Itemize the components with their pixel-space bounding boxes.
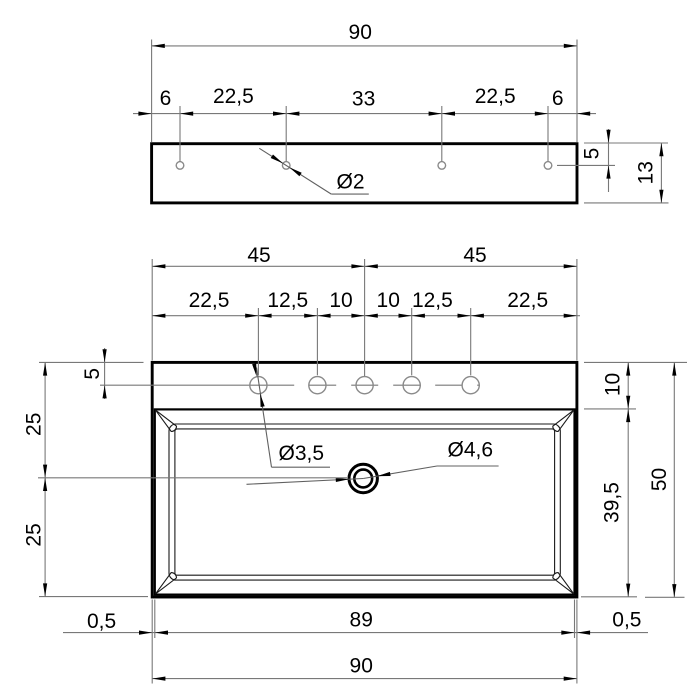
svg-text:0,5: 0,5 — [87, 610, 116, 633]
svg-text:12,5: 12,5 — [267, 289, 308, 312]
svg-text:22,5: 22,5 — [189, 289, 230, 312]
svg-text:5: 5 — [81, 368, 104, 380]
svg-text:45: 45 — [463, 244, 486, 267]
svg-text:6: 6 — [552, 87, 564, 110]
svg-text:39,5: 39,5 — [601, 482, 624, 523]
svg-text:Ø3,5: Ø3,5 — [279, 442, 325, 465]
svg-text:22,5: 22,5 — [475, 85, 516, 108]
svg-text:45: 45 — [247, 244, 270, 267]
svg-text:10: 10 — [377, 289, 400, 312]
svg-text:25: 25 — [23, 523, 46, 546]
svg-text:25: 25 — [23, 413, 46, 436]
svg-text:33: 33 — [352, 88, 375, 111]
svg-text:10: 10 — [329, 289, 352, 312]
svg-text:Ø4,6: Ø4,6 — [448, 438, 494, 461]
svg-text:89: 89 — [350, 609, 373, 632]
svg-text:6: 6 — [160, 87, 172, 110]
svg-text:90: 90 — [350, 655, 373, 678]
svg-text:50: 50 — [648, 468, 671, 491]
svg-text:12,5: 12,5 — [412, 289, 453, 312]
svg-text:Ø2: Ø2 — [336, 170, 364, 193]
svg-text:5: 5 — [580, 148, 603, 160]
svg-text:22,5: 22,5 — [213, 85, 254, 108]
svg-text:22,5: 22,5 — [507, 289, 548, 312]
svg-text:90: 90 — [349, 21, 372, 44]
svg-text:0,5: 0,5 — [612, 609, 641, 632]
svg-text:13: 13 — [634, 161, 657, 184]
svg-text:10: 10 — [602, 373, 625, 396]
